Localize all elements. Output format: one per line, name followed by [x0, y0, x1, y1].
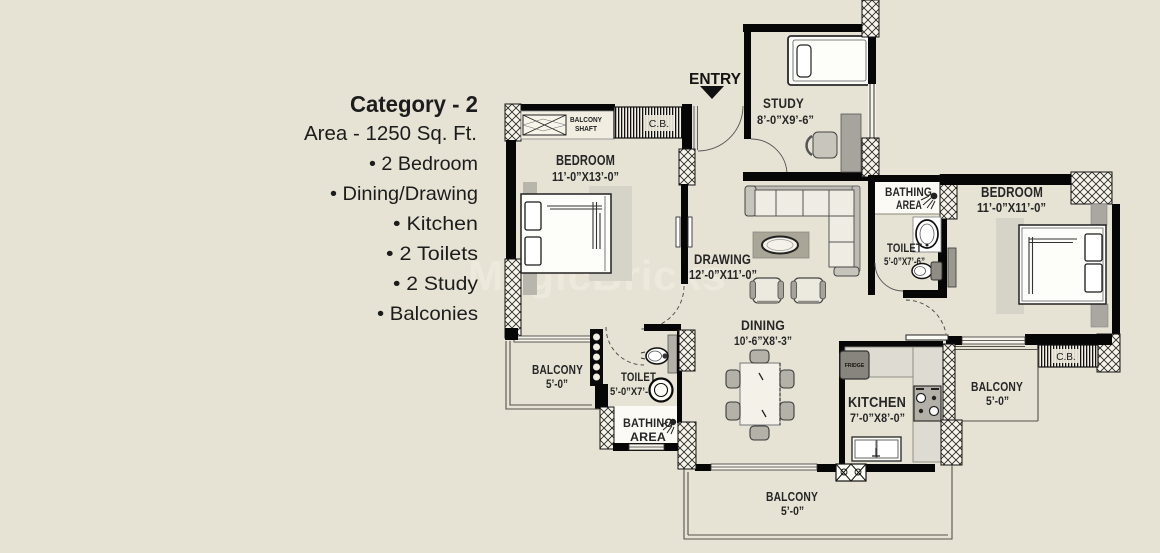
svg-text:BEDROOM: BEDROOM	[556, 153, 615, 169]
svg-text:BALCONY: BALCONY	[971, 380, 1023, 394]
svg-text:TOILET: TOILET	[887, 241, 922, 255]
svg-text:BALCONY: BALCONY	[570, 115, 602, 124]
svg-text:11’-0”X11’-0”: 11’-0”X11’-0”	[977, 201, 1046, 215]
svg-text:11’-0”X13’-0”: 11’-0”X13’-0”	[552, 170, 619, 184]
svg-text:BALCONY: BALCONY	[766, 490, 818, 504]
svg-text:ENTRY: ENTRY	[689, 71, 742, 88]
svg-text:AREA: AREA	[896, 198, 922, 212]
svg-text:AREA: AREA	[630, 430, 666, 444]
svg-text:• Dining/Drawing: • Dining/Drawing	[330, 183, 478, 205]
svg-text:5’-0”: 5’-0”	[781, 506, 804, 518]
svg-text:KITCHEN: KITCHEN	[848, 395, 906, 411]
svg-text:• Kitchen: • Kitchen	[393, 213, 478, 235]
svg-text:BALCONY: BALCONY	[532, 363, 583, 377]
svg-text:5’-0”: 5’-0”	[986, 396, 1009, 408]
svg-text:Area - 1250 Sq. Ft.: Area - 1250 Sq. Ft.	[304, 122, 477, 145]
svg-text:Category - 2: Category - 2	[350, 91, 478, 117]
svg-text:C.B.: C.B.	[1056, 352, 1075, 363]
svg-text:DRAWING: DRAWING	[694, 251, 751, 267]
svg-text:SHAFT: SHAFT	[575, 124, 597, 133]
svg-text:• 2 Bedroom: • 2 Bedroom	[369, 153, 478, 175]
svg-text:12’-0”X11’-0”: 12’-0”X11’-0”	[689, 268, 757, 282]
svg-text:DINING: DINING	[741, 317, 785, 333]
svg-text:C.B.: C.B.	[649, 118, 669, 130]
svg-text:• 2 Toilets: • 2 Toilets	[386, 243, 478, 265]
svg-text:BATHING: BATHING	[885, 185, 932, 199]
svg-text:5’-0”: 5’-0”	[546, 379, 568, 391]
svg-text:7’-0”X8’-0”: 7’-0”X8’-0”	[850, 411, 905, 425]
svg-text:• 2 Study: • 2 Study	[393, 273, 478, 295]
svg-text:STUDY: STUDY	[763, 96, 804, 111]
svg-text:• Balconies: • Balconies	[377, 303, 478, 325]
svg-text:10’-6”X8’-3”: 10’-6”X8’-3”	[734, 334, 792, 348]
svg-text:BEDROOM: BEDROOM	[981, 185, 1043, 201]
svg-text:TOILET: TOILET	[621, 370, 656, 384]
svg-text:8’-0”X9’-6”: 8’-0”X9’-6”	[757, 113, 814, 127]
svg-text:FRIDGE: FRIDGE	[845, 363, 865, 369]
